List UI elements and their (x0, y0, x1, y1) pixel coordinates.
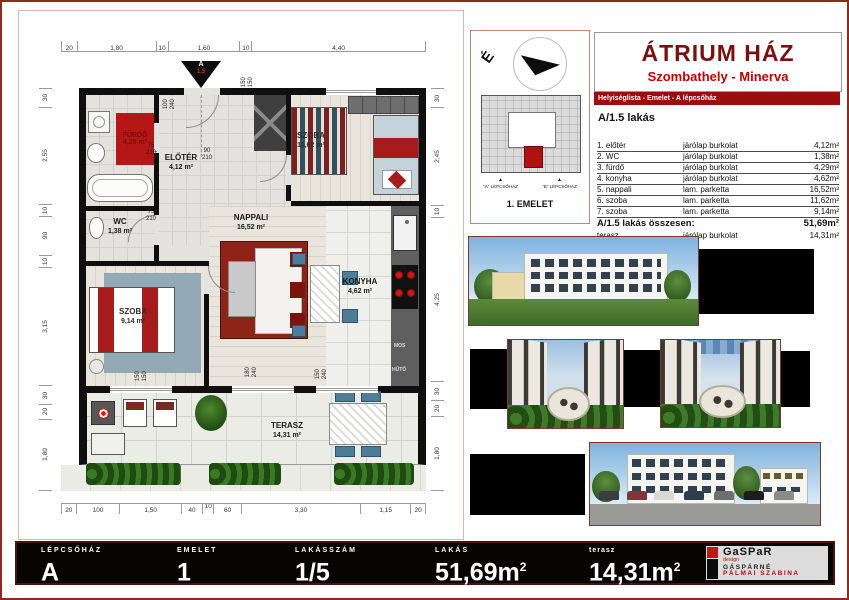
logo-red-square-icon (707, 547, 718, 558)
dining-chair (342, 309, 358, 323)
terrace-planter (91, 401, 115, 425)
logo-tagline: design (723, 558, 828, 564)
footer-terrace-area: terasz 14,31m2 (589, 547, 680, 585)
architect-name-2: PÁLMAI SZABINA (723, 571, 828, 578)
logo-black-square-icon (707, 559, 718, 579)
room-label-nappali: NAPPALI16,52 m² (206, 213, 296, 232)
title-bar-footer: LÉPCSŐHÁZ A EMELET 1 LAKÁSSZÁM 1/5 LAKÁS… (15, 541, 835, 585)
appliance-label: HŰTŐ (392, 367, 406, 373)
site-location-box: É ▲"A" LÉPCSŐHÁZ ▲"B" LÉPCSŐHÁZ 1. EMELE… (470, 30, 590, 224)
window-label: 150150 (135, 371, 149, 381)
site-courtyard (508, 112, 556, 148)
stair-a-label: ▲"A" LÉPCSŐHÁZ (483, 177, 518, 189)
table-row: 7. szobalam. parketta9,14m² (597, 207, 839, 218)
room-label-terasz: TERASZ14,31 m² (247, 421, 327, 440)
window-label: 180240 (245, 367, 259, 377)
room-list-banner: Helyiséglista - Emelet - A lépcsőház (594, 92, 840, 105)
bathtub (87, 174, 153, 202)
dim-line-left: 30 2,55 10 90 10 3,15 30 20 1,80 (39, 88, 52, 491)
door-label: 90210 (196, 148, 218, 162)
window-label: 150240 (315, 369, 329, 379)
project-title: ÁTRIUM HÁZ (595, 40, 841, 67)
black-bar (779, 351, 810, 407)
footer-staircase: LÉPCSŐHÁZ A (41, 547, 102, 585)
table-total-row: A/1.5 lakás összesen:51,69m² (597, 218, 839, 230)
project-subtitle: Szombathely - Minerva (595, 69, 841, 84)
stair-b-label: ▲"B" LÉPCSŐHÁZ (542, 177, 577, 189)
terrace-chair (123, 399, 147, 427)
hedge (334, 463, 414, 485)
terrace-plant (195, 395, 227, 431)
terrace: TERASZ14,31 m² (79, 393, 426, 465)
window-opening (110, 386, 172, 393)
footer-apartment-number: LAKÁSSZÁM 1/5 (295, 547, 357, 585)
footer-apartment-area: LAKÁS 51,69m2 (435, 547, 526, 585)
compass-needle-icon (520, 44, 560, 84)
architect-logo: GaSPaR design GÁSPÁRNÉ PÁLMAI SZABINA (706, 546, 828, 580)
apartment-id-label: A/1.5 lakás (598, 112, 655, 124)
washbasin (87, 143, 105, 163)
window-opening (326, 88, 376, 95)
table-row: 4. konyhajárólap burkolat4,62m² (597, 174, 839, 185)
title-block: ÁTRIUM HÁZ Szombathely - Minerva (594, 32, 842, 92)
render-exterior-2 (589, 442, 821, 526)
dim-line-bottom: 20 100 1,50 40 10 60 3,30 1,15 20 (61, 503, 426, 514)
dim-line-top: 20 1,80 10 1,60 10 4,40 (61, 41, 426, 52)
kitchen-sink (393, 215, 417, 251)
bedroom1-bed (373, 115, 419, 195)
dining-chair (292, 325, 306, 337)
drawing-sheet: 20 1,80 10 1,60 10 4,40 20 100 1,50 40 1… (0, 0, 849, 600)
table-row: 3. fürdőjárólap burkolat4,29m² (597, 163, 839, 174)
site-unit-highlight (524, 146, 543, 168)
table-row: 1. előtérjárólap burkolat4,12m² (597, 141, 839, 152)
north-label: É (478, 49, 498, 67)
render-courtyard-1 (507, 339, 624, 429)
floor-level-label: 1. EMELET (471, 199, 589, 209)
terrace-table (329, 403, 387, 445)
black-bar (470, 349, 507, 409)
compass-icon (513, 37, 567, 91)
washing-machine (88, 111, 110, 133)
room-label-szoba-felso: SZOBA11,62 m² (276, 131, 346, 150)
door-label: 75210 (140, 209, 162, 223)
window-label: 150150 (241, 77, 255, 87)
floor-lamp (89, 359, 104, 374)
room-label-szoba-bal: SZOBA9,14 m² (98, 307, 168, 326)
room-label-wc: WC1,38 m² (94, 217, 146, 236)
entry-door-opening (184, 88, 220, 95)
table-row: 6. szobalam. parketta11,62m² (597, 196, 839, 207)
door-label: 75210 (140, 143, 162, 157)
terrace-dining-chair (335, 446, 355, 457)
footer-floor: EMELET 1 (177, 547, 217, 585)
apartment-outline: FÜRDŐ4,29 m² (79, 88, 426, 393)
site-mini-plan (481, 95, 581, 173)
terrace-dining-chair (361, 446, 381, 457)
black-bar (622, 350, 660, 407)
entry-marker-icon: A 1.5 (181, 61, 221, 88)
dim-line-right: 30 2,45 10 4,25 30 20 1,80 (431, 88, 444, 491)
hedge (86, 463, 181, 485)
stove (392, 265, 418, 309)
room-label-konyha: KONYHA4,62 m² (334, 277, 386, 296)
window-opening (316, 386, 378, 393)
hedge (209, 463, 281, 485)
terrace-lounge (91, 433, 125, 455)
window-label: 100240 (163, 99, 177, 109)
floor-plan-panel: 20 1,80 10 1,60 10 4,40 20 100 1,50 40 1… (18, 10, 464, 540)
render-exterior-1 (468, 236, 699, 326)
table-row: 5. nappalilam. parketta16,52m² (597, 185, 839, 196)
render-courtyard-2 (660, 339, 781, 428)
black-bar (697, 249, 814, 314)
appliance-label: MOS (394, 343, 405, 349)
dining-chair (292, 253, 306, 265)
table-row: 2. WCjárólap burkolat1,38m² (597, 152, 839, 163)
room-table: 1. előtérjárólap burkolat4,12m² 2. WCjár… (597, 141, 839, 241)
terrace-chair (153, 399, 177, 427)
black-bar (470, 454, 585, 515)
bedroom1-wardrobe (348, 96, 419, 114)
terrace-door-opening (232, 386, 294, 393)
